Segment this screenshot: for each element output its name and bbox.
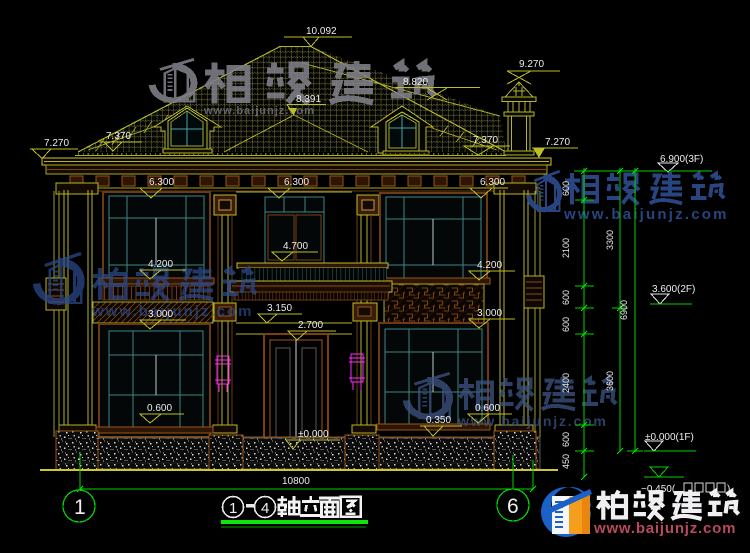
- svg-text:2100: 2100: [561, 238, 571, 258]
- svg-text:4: 4: [261, 500, 269, 517]
- svg-text:www.baijunjz.com: www.baijunjz.com: [593, 520, 736, 537]
- svg-text:6.300: 6.300: [149, 177, 174, 188]
- svg-text:600: 600: [561, 181, 571, 196]
- svg-text:10800: 10800: [282, 476, 310, 487]
- svg-text:1: 1: [74, 496, 86, 519]
- svg-text:7.370: 7.370: [473, 135, 498, 146]
- svg-text:4.200: 4.200: [148, 259, 173, 270]
- svg-text:1: 1: [229, 500, 237, 517]
- svg-text:0.600: 0.600: [147, 403, 172, 414]
- svg-text:3.150: 3.150: [267, 303, 292, 314]
- svg-text:7.370: 7.370: [106, 131, 131, 142]
- svg-text:10.092: 10.092: [306, 26, 337, 37]
- svg-text:2.700: 2.700: [298, 320, 323, 331]
- svg-text:www.baijunjz.com: www.baijunjz.com: [563, 206, 729, 223]
- svg-text:600: 600: [561, 432, 571, 447]
- svg-text:2400: 2400: [561, 373, 571, 393]
- svg-text:7.270: 7.270: [545, 137, 570, 148]
- svg-text:0.350: 0.350: [426, 415, 451, 426]
- svg-text:6900: 6900: [619, 300, 629, 320]
- svg-text:9.270: 9.270: [519, 59, 544, 70]
- svg-text:600: 600: [561, 317, 571, 332]
- svg-text:0.600: 0.600: [475, 403, 500, 414]
- svg-text:8.820: 8.820: [403, 77, 428, 88]
- svg-text:7.270: 7.270: [44, 138, 69, 149]
- svg-text:±0.000: ±0.000: [298, 429, 329, 440]
- svg-text:3600: 3600: [605, 371, 615, 391]
- svg-text:3.000: 3.000: [477, 308, 502, 319]
- svg-text:6.300: 6.300: [480, 177, 505, 188]
- svg-text:8.391: 8.391: [296, 94, 321, 105]
- svg-text:3.600(2F): 3.600(2F): [652, 284, 695, 295]
- svg-text:600: 600: [561, 290, 571, 305]
- svg-text:www.baijunjz.com: www.baijunjz.com: [457, 413, 608, 429]
- svg-text:4.200: 4.200: [477, 260, 502, 271]
- svg-text:6.300: 6.300: [284, 177, 309, 188]
- svg-text:www.baijunjz.com: www.baijunjz.com: [203, 105, 315, 117]
- svg-text:3300: 3300: [605, 230, 615, 250]
- svg-text:3.000: 3.000: [148, 309, 173, 320]
- svg-text:4.700: 4.700: [283, 241, 308, 252]
- svg-text:6: 6: [507, 495, 519, 518]
- svg-text:450: 450: [561, 454, 571, 469]
